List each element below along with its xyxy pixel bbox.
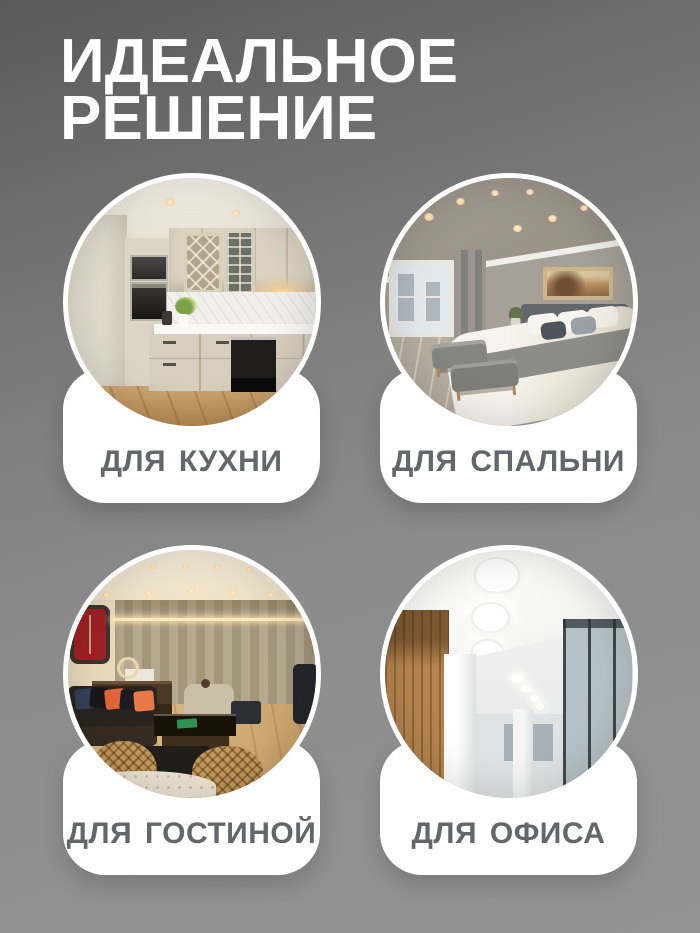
kitchen-countertop	[154, 324, 315, 334]
kitchen-floor	[68, 386, 316, 426]
living-room-spotlight	[102, 592, 111, 598]
office-round-light	[471, 602, 510, 633]
kitchen-ceiling-light	[164, 198, 176, 206]
office-column	[444, 654, 476, 798]
sofa-pillow-orange	[134, 691, 155, 712]
kitchen-microwave	[130, 255, 169, 281]
card-office: ДЛЯ ОФИСА	[380, 545, 637, 875]
window-building	[426, 282, 440, 321]
card-label: ДЛЯ СПАЛЬНИ	[392, 447, 625, 477]
bedroom-window	[389, 260, 453, 337]
card-kitchen: ДЛЯ КУХНИ	[63, 173, 320, 503]
card-label: ДЛЯ КУХНИ	[101, 447, 283, 477]
page-title: ИДЕАЛЬНОЕРЕШЕНИЕ	[60, 33, 458, 147]
kitchen-tall-cabinet	[63, 215, 127, 394]
office-wood-panel-wall	[385, 610, 449, 798]
living-room-person	[201, 679, 210, 688]
bedroom-pillow	[540, 320, 567, 340]
living-room-red-artwork	[70, 605, 110, 665]
card-bedroom: ДЛЯ СПАЛЬНИ	[380, 173, 637, 503]
card-label: ДЛЯ ОФИСА	[412, 819, 606, 849]
card-living-room: ДЛЯ ГОСТИНОЙ	[63, 545, 320, 875]
cards-grid: ДЛЯ КУХНИ	[63, 173, 637, 875]
living-room-cove-light	[112, 618, 315, 621]
living-room-spotlight	[182, 564, 189, 569]
office-column	[513, 709, 533, 798]
living-room-spotlight	[149, 565, 156, 570]
office-photo	[380, 545, 638, 803]
kitchen-scene	[68, 178, 316, 426]
bedroom-photo	[380, 173, 638, 431]
kitchen-vase	[179, 314, 188, 325]
living-room-scene	[68, 550, 316, 798]
title-line-2: РЕШЕНИЕ	[60, 84, 377, 153]
window-building	[398, 274, 414, 321]
living-room-photo	[63, 545, 321, 803]
bedroom-scene	[385, 178, 633, 426]
kitchen-flowers	[175, 297, 197, 315]
office-scene	[385, 550, 633, 798]
bedroom-spotlight	[456, 198, 465, 205]
bedroom-spotlight	[548, 215, 557, 222]
kitchen-ceiling-light	[231, 210, 241, 217]
living-room-green-book	[176, 718, 196, 728]
kitchen-range-oven	[231, 337, 276, 392]
bedroom-spotlight	[424, 213, 434, 221]
living-room-spotlight	[229, 590, 238, 596]
living-room-spotlight	[144, 590, 153, 596]
kitchen-coffee-maker	[162, 311, 172, 325]
living-room-desk-chair	[293, 664, 318, 724]
bedroom-pillow	[570, 315, 597, 335]
office-glass-wall	[563, 619, 632, 798]
office-round-light	[474, 557, 520, 593]
bedroom-wall-art	[543, 267, 612, 299]
card-label: ДЛЯ ГОСТИНОЙ	[67, 819, 317, 849]
kitchen-photo	[63, 173, 321, 431]
office-round-light-small	[536, 704, 544, 710]
poster-background: ИДЕАЛЬНОЕРЕШЕНИЕ ДЛЯ КУХНИ	[0, 0, 700, 933]
living-room-ring-lamp	[117, 657, 139, 679]
kitchen-glass-cabinet	[184, 233, 222, 294]
